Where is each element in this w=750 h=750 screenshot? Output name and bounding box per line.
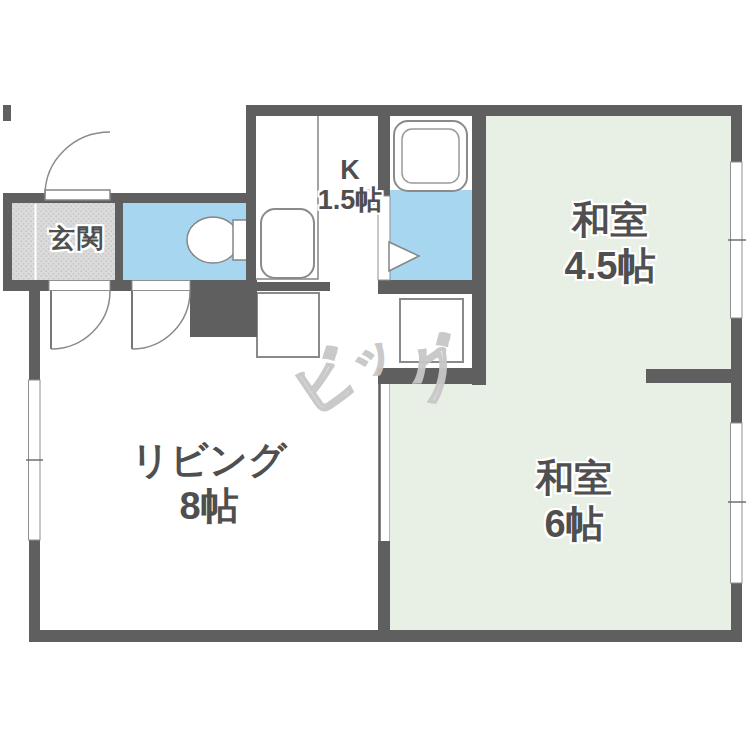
wall-top xyxy=(246,105,742,116)
wall-kitchen-south xyxy=(246,282,330,291)
washitsu-4-5-size: 4.5帖 xyxy=(565,243,656,289)
refrigerator-space xyxy=(257,293,319,357)
wall-genkan-left xyxy=(3,193,12,290)
kitchen-sink-icon xyxy=(261,209,314,278)
wall-stub-topleft xyxy=(3,105,11,121)
genkan-step-line xyxy=(35,204,37,280)
wall-spine-lower xyxy=(378,541,390,630)
washitsu-6-name: 和室 xyxy=(536,455,612,501)
living-name: リビング xyxy=(131,437,287,483)
entrance-door-arc xyxy=(45,132,110,195)
toilet-tank-icon xyxy=(233,220,248,260)
wall-kitchen-west xyxy=(246,116,256,282)
room-label-washitsu-6: 和室 6帖 xyxy=(536,455,612,547)
toilet-bowl-icon xyxy=(187,217,239,263)
washing-machine-space xyxy=(400,299,463,362)
floor-plan-image: 玄関 K 1.5帖 和室 4.5帖 リビング 8帖 和室 6帖 ビ ッ グ xyxy=(0,0,750,750)
wall-alcove-south xyxy=(378,368,486,384)
living-door-opening-1 xyxy=(49,281,110,291)
room-label-washitsu-4-5: 和室 4.5帖 xyxy=(565,197,656,289)
genkan-name: 玄関 xyxy=(49,224,105,252)
living-size: 8帖 xyxy=(131,483,287,529)
floor-plan-drawing xyxy=(0,0,750,750)
kitchen-size: 1.5帖 xyxy=(318,185,383,215)
wall-washroom-south xyxy=(378,280,473,294)
wall-bath-east xyxy=(472,116,486,385)
living-door-1-arc xyxy=(51,291,110,349)
room-label-genkan: 玄関 xyxy=(49,224,105,252)
wall-genkan-bottom xyxy=(3,280,49,291)
wall-washitsu-divider xyxy=(646,369,742,383)
window-right-lower xyxy=(731,423,743,583)
wall-genkan-toilet-divider xyxy=(115,203,123,280)
wall-bottom xyxy=(29,630,742,642)
living-door-2-arc xyxy=(132,291,190,349)
room-label-living: リビング 8帖 xyxy=(131,437,287,529)
kitchen-name: K xyxy=(318,155,383,185)
living-door-opening-2 xyxy=(132,281,190,291)
washroom-floor xyxy=(390,190,473,282)
wall-genkan-top xyxy=(3,193,246,203)
washitsu-6-size: 6帖 xyxy=(536,501,612,547)
entrance-door-leaf xyxy=(45,190,110,200)
washitsu-4-5-name: 和室 xyxy=(565,197,656,243)
wall-between-doors xyxy=(110,280,132,291)
room-label-kitchen: K 1.5帖 xyxy=(318,155,383,215)
